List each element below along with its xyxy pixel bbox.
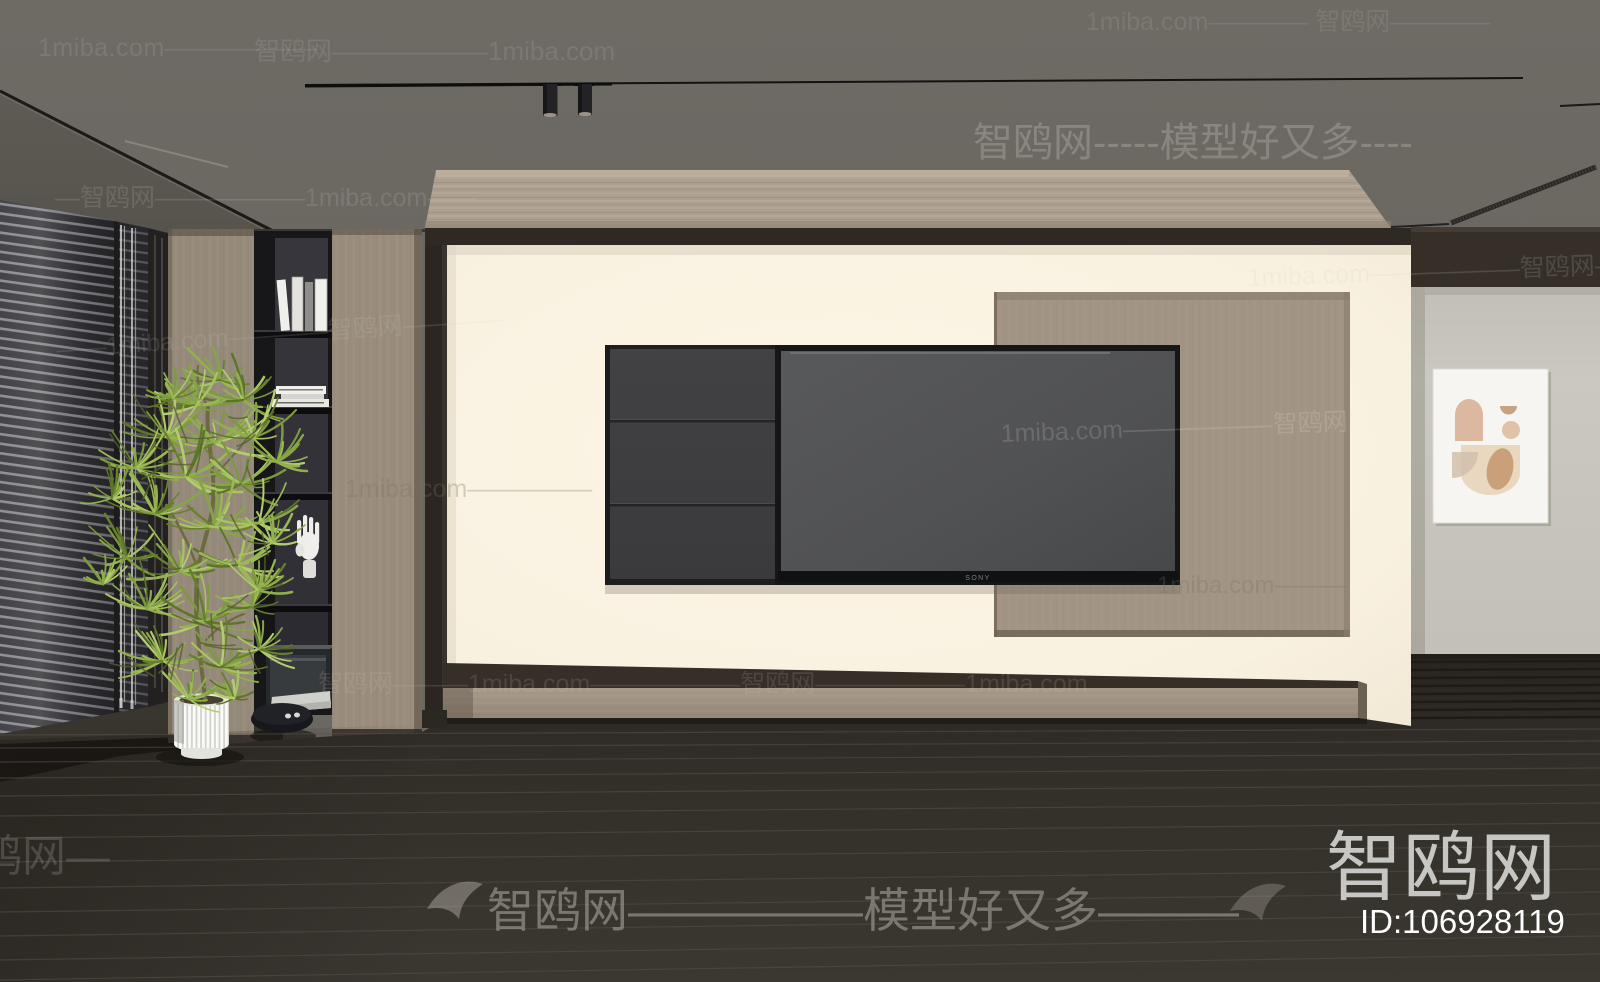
svg-text:SONY: SONY [965,575,990,582]
